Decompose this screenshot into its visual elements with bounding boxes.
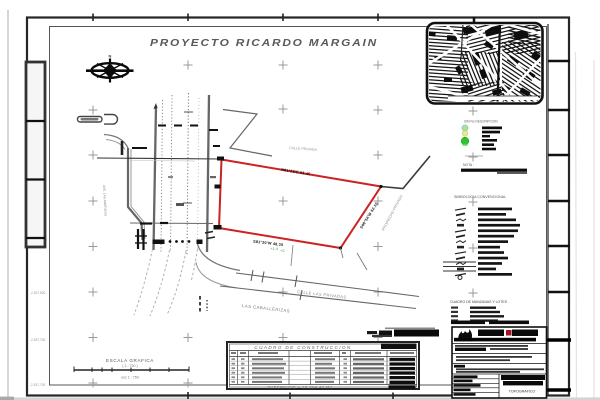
svg-text:SIM No DESCRIPCION: SIM No DESCRIPCION	[464, 120, 498, 124]
svg-text:TOPOGRAFICO: TOPOGRAFICO	[509, 390, 536, 394]
svg-text:SUPERFICIE = 10,364.40 M2: SUPERFICIE = 10,364.40 M2	[267, 385, 332, 389]
svg-text:N: N	[109, 54, 112, 59]
svg-text:( 1 : 750 ): ( 1 : 750 )	[122, 364, 137, 368]
svg-text:ESCALA GRAFICA: ESCALA GRAFICA	[106, 358, 154, 363]
svg-text:esc 1 : 750: esc 1 : 750	[121, 376, 139, 380]
svg-text:-2,537,750: -2,537,750	[30, 338, 45, 342]
svg-text:PROYECTO RICARDO MARGAIN: PROYECTO RICARDO MARGAIN	[150, 38, 378, 49]
svg-text:-2,537,700: -2,537,700	[30, 383, 45, 387]
svg-text:-2,537,800: -2,537,800	[30, 291, 45, 295]
svg-text:CUADRO DE MANZANAS Y LOTES: CUADRO DE MANZANAS Y LOTES	[450, 300, 508, 304]
svg-text:NOTA :: NOTA :	[463, 163, 474, 167]
svg-text:+1.4: +1.4	[270, 246, 279, 251]
svg-text:+2: +2	[280, 248, 285, 253]
svg-text:CUADRO DE CONSTRUCCION: CUADRO DE CONSTRUCCION	[254, 345, 351, 350]
svg-text:SIMBOLOGIA CONVENCIONAL: SIMBOLOGIA CONVENCIONAL	[454, 195, 506, 199]
